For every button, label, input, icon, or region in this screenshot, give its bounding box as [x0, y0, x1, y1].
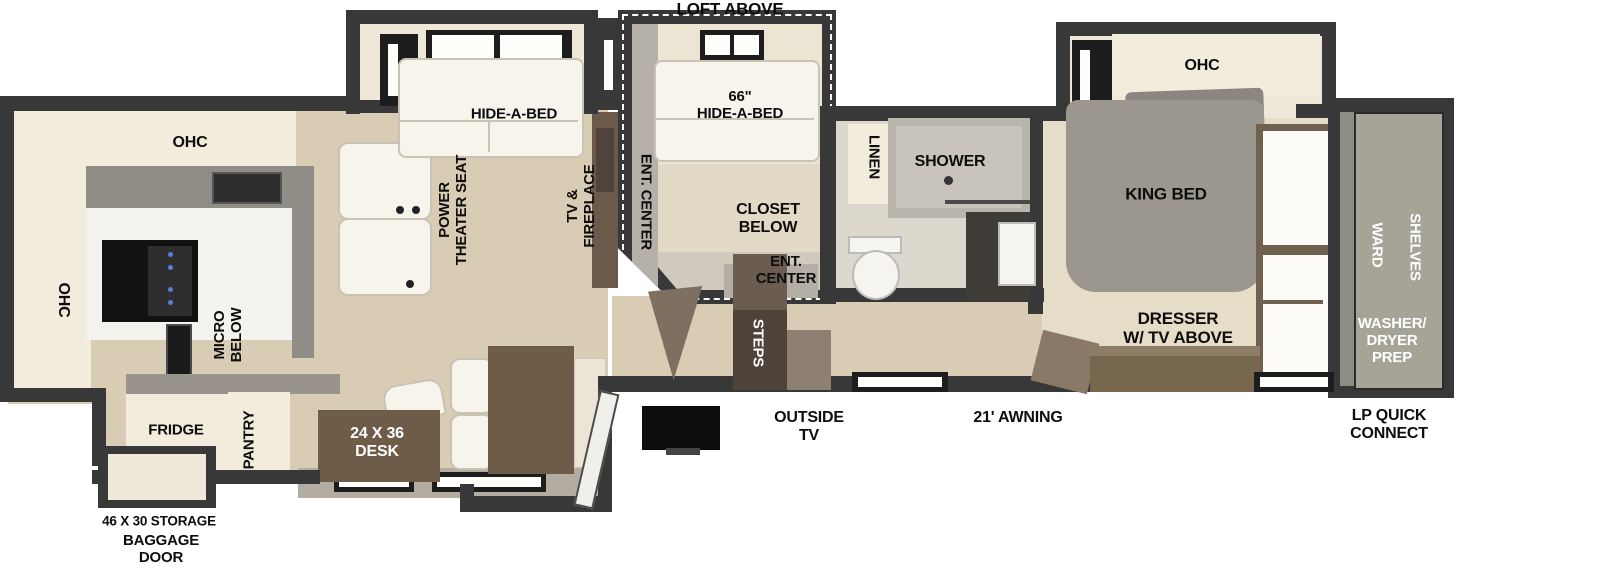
label-loft-ent-center-side: ENT. CENTER — [637, 154, 654, 250]
wall — [346, 10, 360, 114]
label-awning: 21' AWNING — [973, 409, 1062, 427]
label-loft-bed: 66" HIDE-A-BED — [697, 89, 783, 123]
kitchen-ohc-left-cabinet — [11, 110, 91, 394]
outside-tv-base — [666, 448, 700, 455]
window-pane — [1260, 377, 1328, 387]
label-loft-ent-center: ENT. CENTER — [756, 254, 816, 288]
burner-dot — [168, 287, 173, 292]
label-pantry: PANTRY — [242, 411, 259, 470]
bath-vanity-sink — [998, 222, 1036, 286]
burner-dot — [168, 265, 173, 270]
storage-compartment-door — [108, 454, 206, 500]
label-kitchen-ohc-left: OHC — [54, 283, 72, 318]
wall — [584, 10, 598, 114]
window-pane — [858, 377, 942, 387]
wall — [0, 96, 14, 402]
wall — [346, 10, 598, 24]
label-baggage-door: BAGGAGE DOOR — [123, 533, 199, 567]
label-shelves: SHELVES — [1406, 213, 1423, 281]
window-pane — [388, 44, 398, 96]
wall — [820, 106, 834, 304]
kitchen-counter-return — [292, 166, 314, 358]
steps-side — [787, 330, 831, 390]
window-pane — [604, 40, 613, 90]
sofa-cushion-line — [488, 122, 490, 152]
cupholder — [396, 206, 404, 214]
label-shower: SHOWER — [915, 153, 986, 171]
shower-drain — [944, 176, 953, 185]
dinette-table — [488, 346, 574, 474]
cupholder — [406, 280, 414, 288]
window-pane — [1080, 50, 1090, 102]
label-micro-below: MICRO BELOW — [212, 308, 246, 363]
dresser — [1090, 356, 1260, 392]
label-washer-dryer: WASHER/ DRYER PREP — [1358, 316, 1427, 366]
label-loft-above: LOFT ABOVE — [677, 0, 784, 19]
burner-dot — [168, 252, 173, 257]
shower-glass — [945, 200, 1030, 204]
dishwasher — [166, 324, 192, 378]
kitchen-sink — [212, 172, 282, 204]
label-linen: LINEN — [865, 135, 882, 179]
label-lp-quick-connect: LP QUICK CONNECT — [1350, 407, 1428, 443]
label-dresser: DRESSER W/ TV ABOVE — [1123, 309, 1233, 347]
label-ward: WARD — [1368, 222, 1385, 267]
theater-seat-cushion — [338, 218, 432, 296]
window-mullion — [1263, 300, 1323, 304]
floorplan-canvas: LOFT ABOVE 66" HIDE-A-BED ENT. CENTER CL… — [0, 0, 1600, 572]
label-hide-a-bed: HIDE-A-BED — [471, 107, 557, 124]
burner-dot — [168, 300, 173, 305]
window-pane — [437, 477, 541, 487]
wall — [0, 388, 104, 402]
label-bedroom-ohc: OHC — [1185, 57, 1220, 75]
label-outside-tv: OUTSIDE TV — [774, 409, 844, 445]
wall — [0, 96, 362, 111]
label-fridge: FRIDGE — [148, 423, 203, 440]
label-desk: 24 X 36 DESK — [350, 425, 404, 461]
label-kitchen-ohc-top: OHC — [173, 134, 208, 152]
label-steps: STEPS — [749, 319, 766, 367]
cap-shelf-strip — [1340, 112, 1354, 386]
label-theater-seat: POWER THEATER SEAT — [437, 155, 471, 265]
cupholder — [412, 206, 420, 214]
outside-tv — [642, 406, 720, 450]
label-storage: 46 X 30 STORAGE — [102, 513, 216, 528]
label-closet-below: CLOSET BELOW — [736, 201, 800, 237]
toilet-bowl — [852, 250, 900, 300]
fridge-slide-wall — [126, 374, 340, 394]
label-king-bed: KING BED — [1125, 184, 1207, 203]
label-tv-fireplace: TV & FIREPLACE — [565, 164, 599, 247]
